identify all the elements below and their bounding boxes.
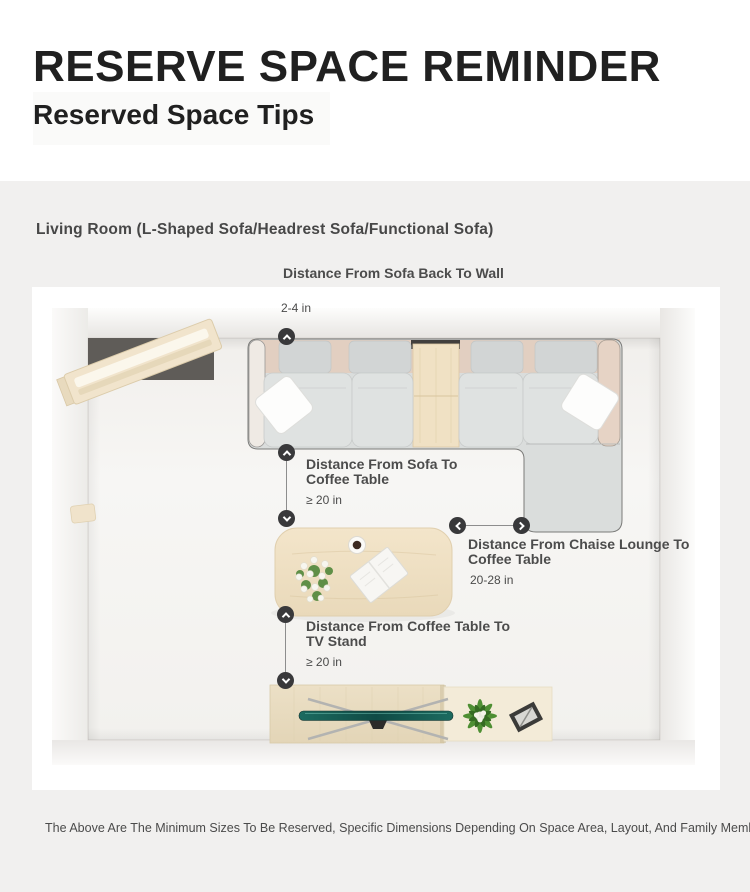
- arrow-right-icon: [513, 517, 530, 534]
- arrow-down-icon: [277, 672, 294, 689]
- disclaimer-container: The Above Are The Minimum Sizes To Be Re…: [45, 821, 750, 839]
- arrow-left-icon: [449, 517, 466, 534]
- arrow-up-icon: [277, 606, 294, 623]
- coffee-cup: [349, 537, 366, 554]
- annotation-sofa-back-to-wall-label: Distance From Sofa Back To Wall: [283, 266, 504, 281]
- annotation-sofa-to-coffee-table-value: ≥ 20 in: [306, 493, 342, 507]
- annotation-chaise-to-coffee-table-label: Distance From Chaise Lounge To Coffee Ta…: [468, 537, 703, 566]
- annotation-coffee-table-to-tv-label: Distance From Coffee Table To TV Stand: [306, 619, 518, 648]
- page-subtitle: Reserved Space Tips: [33, 92, 330, 145]
- page-title: RESERVE SPACE REMINDER: [33, 42, 661, 92]
- arrow-up-icon: [278, 328, 295, 345]
- coffee-table: [271, 528, 455, 622]
- tv-stand: [270, 685, 552, 743]
- connector-line-vertical: [286, 461, 287, 511]
- annotation-sofa-to-coffee-table-label: Distance From Sofa To Coffee Table: [306, 457, 481, 486]
- disclaimer-text: The Above Are The Minimum Sizes To Be Re…: [45, 821, 750, 835]
- arrow-down-icon: [278, 510, 295, 527]
- connector-line-horizontal: [466, 525, 514, 526]
- plant-icon: [463, 699, 497, 733]
- annotation-chaise-to-coffee-table-value: 20-28 in: [470, 573, 513, 587]
- section-title: Living Room (L-Shaped Sofa/Headrest Sofa…: [36, 221, 494, 239]
- arrow-up-icon: [278, 444, 295, 461]
- sofa-side-table-insert: [413, 344, 459, 447]
- connector-line-vertical: [285, 623, 286, 673]
- annotation-sofa-back-to-wall-value: 2-4 in: [281, 301, 311, 315]
- annotation-coffee-table-to-tv-value: ≥ 20 in: [306, 655, 342, 669]
- wall-bracket: [70, 504, 96, 524]
